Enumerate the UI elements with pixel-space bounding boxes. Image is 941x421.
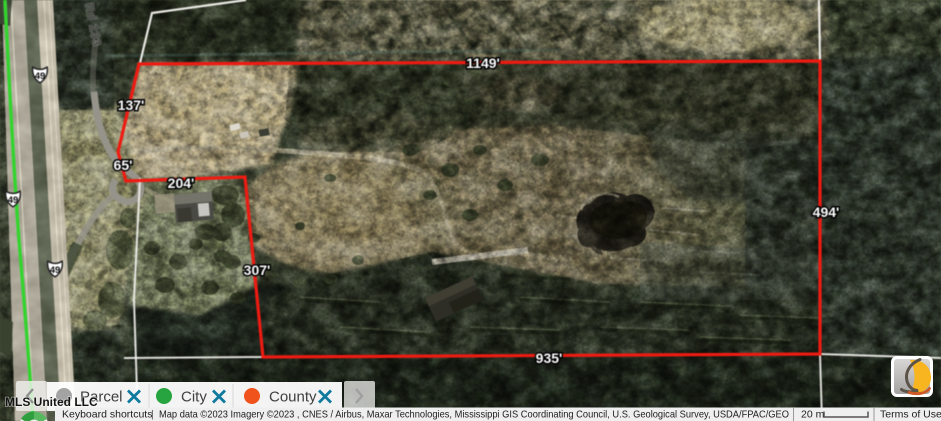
svg-text:County: County (269, 389, 317, 406)
svg-text:204': 204' (168, 175, 195, 191)
svg-text:Keyboard shortcuts: Keyboard shortcuts (62, 409, 152, 421)
svg-text:MLS United LLC: MLS United LLC (5, 395, 98, 409)
svg-text:65': 65' (114, 157, 133, 173)
svg-text:1149': 1149' (466, 55, 500, 71)
svg-text:49: 49 (50, 265, 61, 276)
svg-text:49: 49 (35, 71, 46, 82)
svg-text:Map data ©2023 Imagery ©2023 ,: Map data ©2023 Imagery ©2023 , CNES / Ai… (159, 409, 789, 421)
svg-text:City: City (181, 389, 207, 406)
svg-text:20 m: 20 m (801, 409, 825, 421)
svg-text:|: | (151, 409, 154, 421)
svg-text:307': 307' (244, 262, 271, 278)
svg-text:935': 935' (536, 350, 563, 366)
svg-text:137': 137' (118, 97, 145, 113)
svg-text:Terms of Use: Terms of Use (880, 409, 941, 421)
svg-text:49: 49 (8, 195, 19, 206)
svg-text:494': 494' (813, 204, 840, 220)
